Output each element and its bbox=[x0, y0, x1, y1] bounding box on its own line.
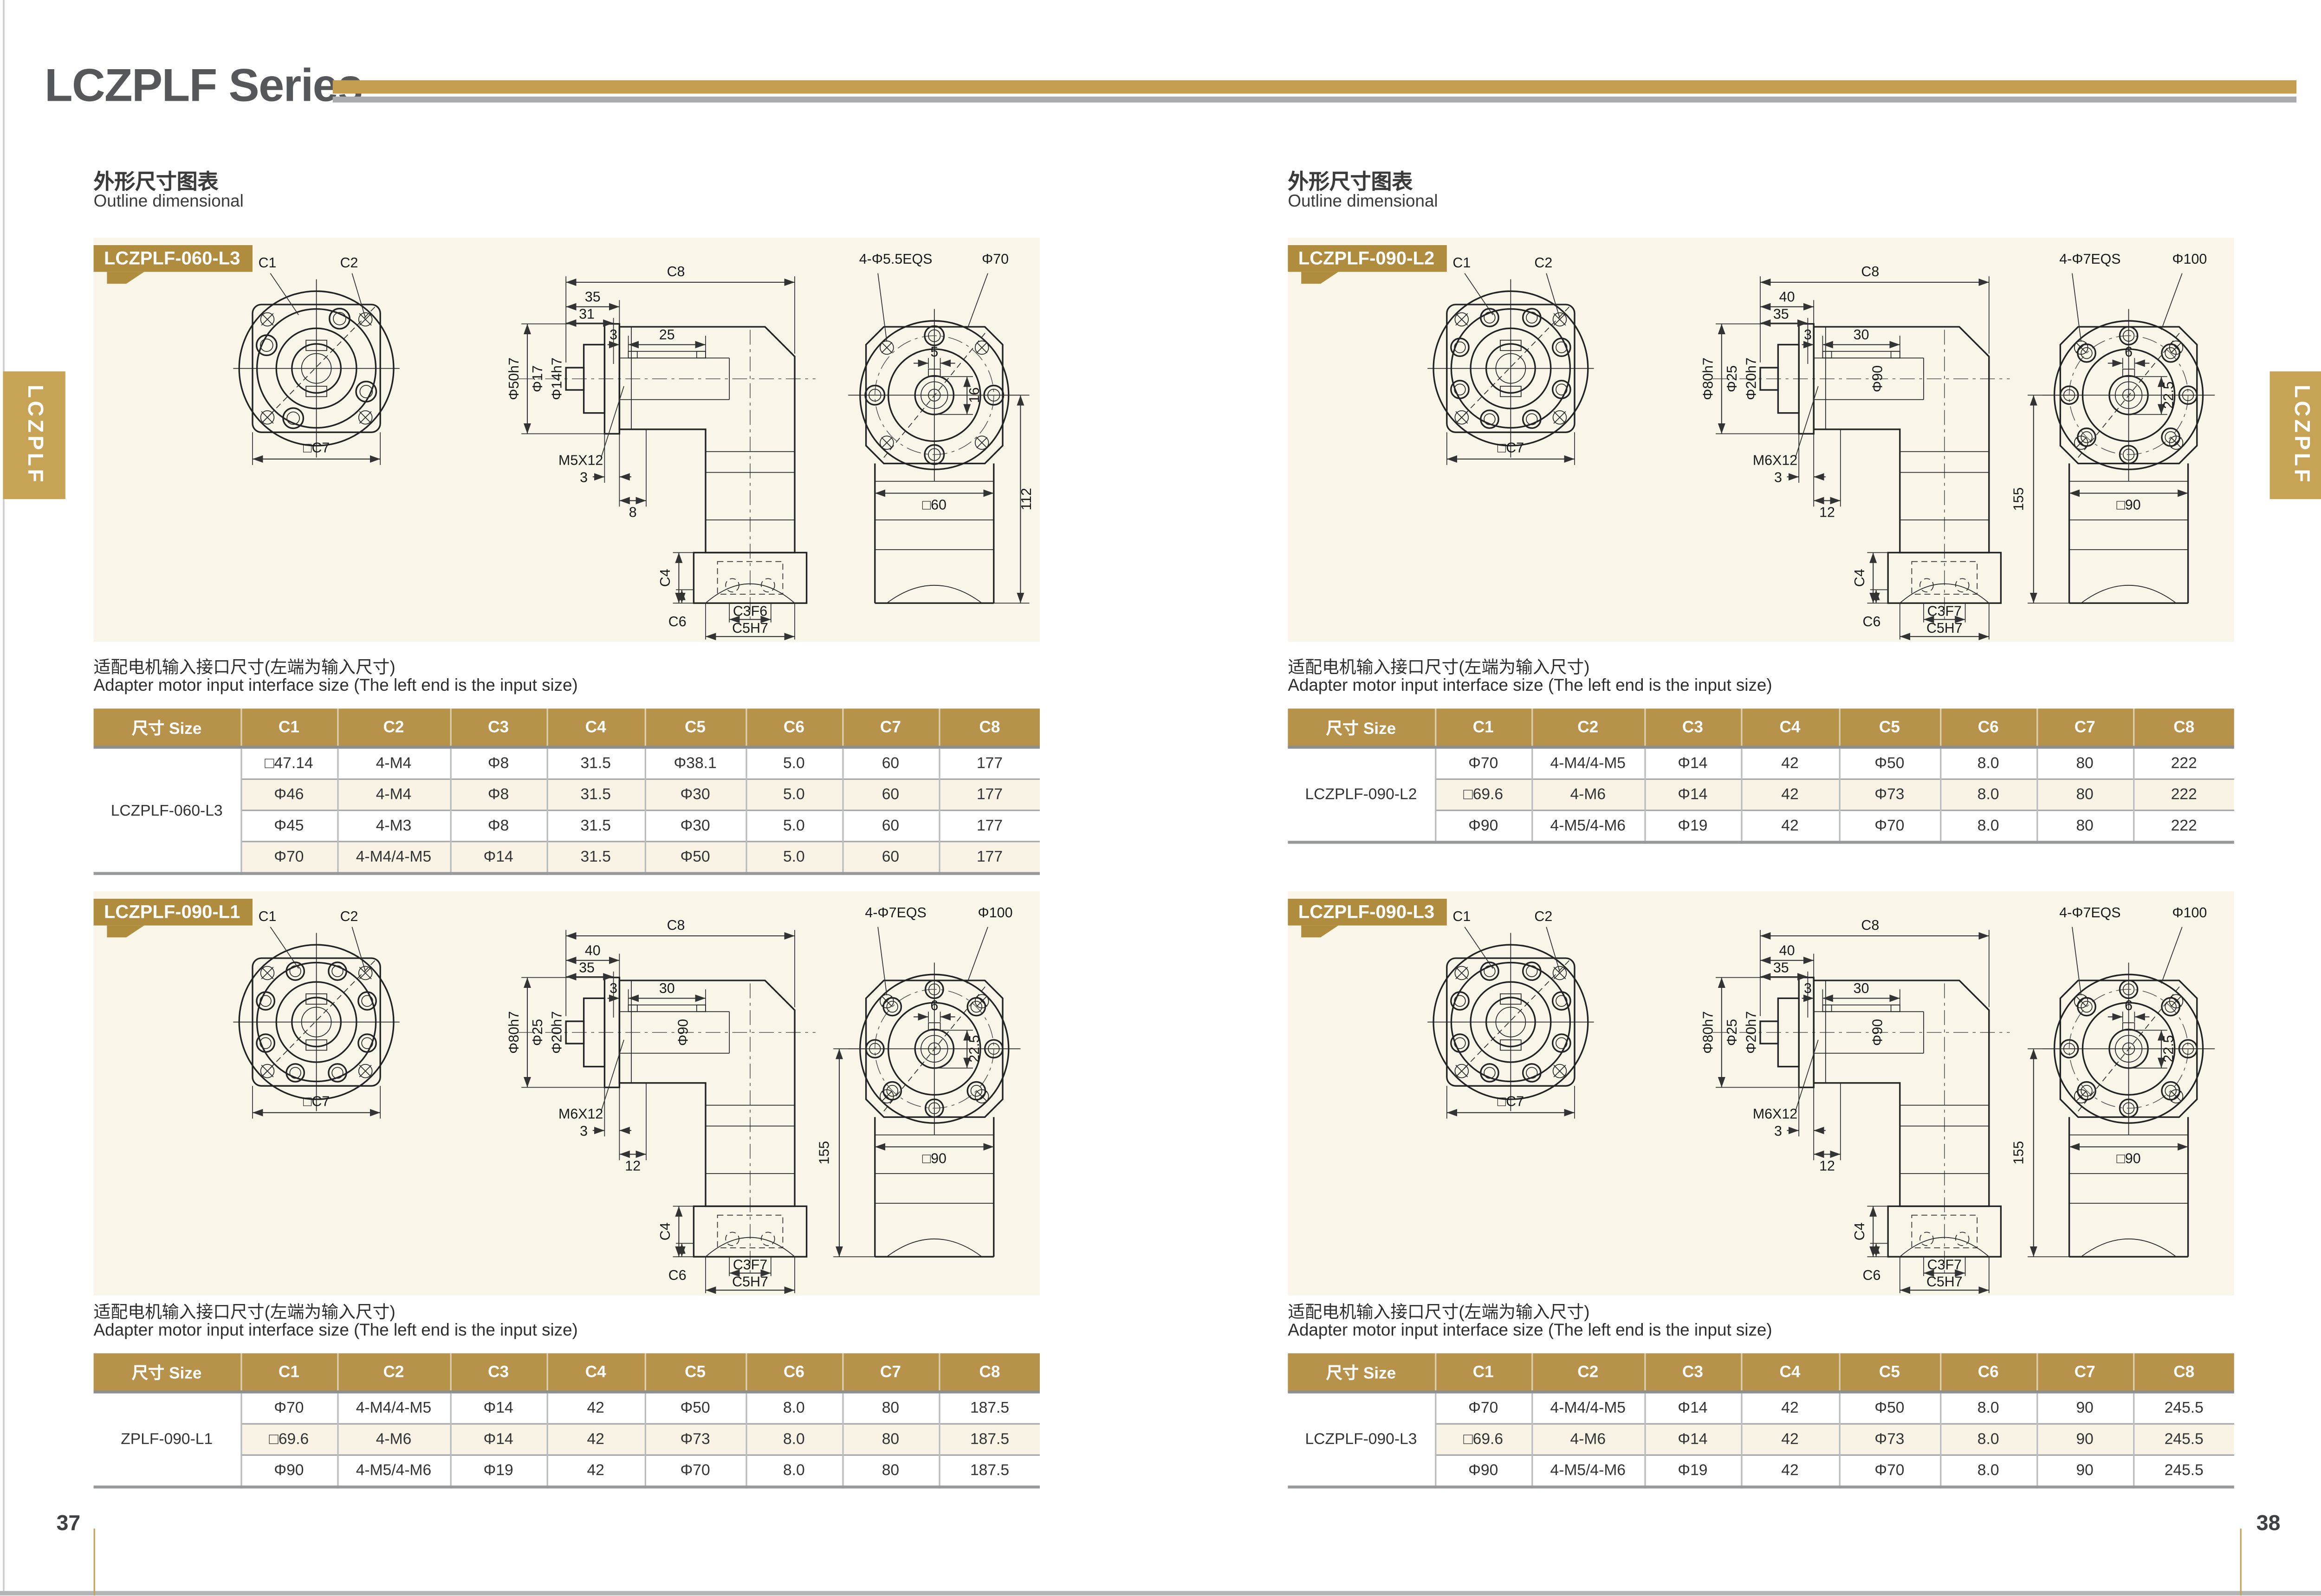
spec-value: 80 bbox=[2036, 779, 2133, 810]
column-header: C8 bbox=[939, 1353, 1040, 1392]
dim-label: C5H7 bbox=[1926, 620, 1963, 636]
spec-value: 8.0 bbox=[1940, 747, 2036, 779]
column-header: C4 bbox=[547, 1353, 645, 1392]
dim-label: Φ100 bbox=[2172, 905, 2207, 921]
spec-value: 5.0 bbox=[746, 747, 842, 779]
spec-value: 60 bbox=[842, 779, 939, 810]
dim-label: C4 bbox=[1852, 1222, 1867, 1240]
dim-label: 112 bbox=[1018, 488, 1034, 510]
section-heading-zh: 外形尺寸图表 bbox=[1288, 166, 1413, 196]
dim-label: 3 bbox=[1774, 1123, 1782, 1139]
table-header-row: 尺寸 SizeC1C2C3C4C5C6C7C8 bbox=[1288, 708, 2234, 747]
spec-value: 80 bbox=[842, 1455, 939, 1487]
column-header: C4 bbox=[547, 708, 645, 747]
column-header: C5 bbox=[645, 1353, 746, 1392]
spec-value: Φ19 bbox=[450, 1455, 547, 1487]
spec-value: 187.5 bbox=[939, 1455, 1040, 1487]
dimension-drawing: C1 C2 □C7 C8 40 35 3 30 Φ80h7 Φ25 Φ20h7 … bbox=[1288, 891, 2234, 1295]
dim-label: 22.5 bbox=[2161, 1035, 2177, 1063]
spec-value: 80 bbox=[842, 1392, 939, 1424]
note-en: Adapter motor input interface size (The … bbox=[94, 1322, 578, 1340]
spec-value: 187.5 bbox=[939, 1424, 1040, 1455]
column-header: C8 bbox=[2133, 1353, 2234, 1392]
spec-value: Φ45 bbox=[240, 811, 337, 842]
spec-value: 245.5 bbox=[2133, 1392, 2234, 1424]
column-header: C7 bbox=[2036, 1353, 2133, 1392]
spec-value: Φ14 bbox=[450, 1424, 547, 1455]
left-column: 外形尺寸图表 Outline dimensional C1 C2 □C7 C8 … bbox=[94, 0, 1040, 1596]
dim-label: 3 bbox=[1774, 469, 1782, 485]
dim-label: 35 bbox=[579, 960, 595, 975]
spec-value: Φ8 bbox=[450, 747, 547, 779]
dim-label: 6 bbox=[2125, 998, 2133, 1013]
dim-label: C2 bbox=[1534, 255, 1552, 271]
dim-label: Φ25 bbox=[1724, 1019, 1740, 1046]
spec-value: Φ30 bbox=[645, 779, 746, 810]
spec-value: 60 bbox=[842, 842, 939, 874]
column-header: C4 bbox=[1741, 1353, 1839, 1392]
dim-label: 12 bbox=[1819, 1158, 1835, 1174]
column-header: C7 bbox=[842, 708, 939, 747]
dim-label: C1 bbox=[1452, 908, 1471, 924]
dim-label: 12 bbox=[625, 1158, 641, 1174]
dim-label: C2 bbox=[340, 255, 358, 271]
dim-label: C3F7 bbox=[1927, 603, 1962, 619]
dim-label: M6X12 bbox=[1753, 453, 1797, 468]
column-header: 尺寸 Size bbox=[1288, 1353, 1435, 1392]
dim-label: 3 bbox=[580, 469, 588, 485]
page-number-left: 37 bbox=[57, 1512, 81, 1536]
dim-label: Φ90 bbox=[1869, 1019, 1885, 1046]
dim-label: Φ25 bbox=[1724, 365, 1740, 392]
spec-value: 31.5 bbox=[547, 842, 645, 874]
side-tab-label: LCZPLF bbox=[2289, 385, 2313, 485]
dimension-drawing: C1 C2 □C7 C8 35 31 3 25 Φ50h7 Φ17 Φ14h7 … bbox=[94, 238, 1040, 642]
page-border-left bbox=[3, 0, 4, 1596]
column-header: C6 bbox=[1940, 1353, 2036, 1392]
column-header: 尺寸 Size bbox=[1288, 708, 1435, 747]
right-column: 外形尺寸图表 Outline dimensional C1 C2 □C7 C8 … bbox=[1288, 0, 2234, 1596]
spec-value: 60 bbox=[842, 811, 939, 842]
column-header: C4 bbox=[1741, 708, 1839, 747]
outline-drawing-panel: C1 C2 □C7 C8 40 35 3 30 Φ80h7 Φ25 Φ20h7 … bbox=[1288, 238, 2234, 642]
dim-label: C2 bbox=[1534, 908, 1552, 924]
dim-label: 3 bbox=[1804, 980, 1812, 996]
dim-label: 4-Φ5.5EQS bbox=[859, 251, 933, 267]
spec-value: Φ50 bbox=[1839, 747, 1940, 779]
spec-value: 42 bbox=[547, 1424, 645, 1455]
outline-drawing-panel: C1 C2 □C7 C8 40 35 3 30 Φ80h7 Φ25 Φ20h7 … bbox=[94, 891, 1040, 1295]
spec-value: Φ70 bbox=[240, 1392, 337, 1424]
dim-label: C3F6 bbox=[733, 603, 767, 619]
dim-label: □C7 bbox=[303, 440, 330, 455]
dim-label: □90 bbox=[2117, 1151, 2141, 1167]
spec-table: 尺寸 SizeC1C2C3C4C5C6C7C8 LCZPLF-060-L3 □4… bbox=[94, 708, 1040, 875]
spec-value: 42 bbox=[1741, 747, 1839, 779]
spec-value: 8.0 bbox=[1940, 1455, 2036, 1487]
dim-label: Φ90 bbox=[1869, 365, 1885, 392]
row-label: LCZPLF-090-L2 bbox=[1288, 747, 1435, 843]
dim-label: 12 bbox=[1819, 505, 1835, 520]
spec-value: Φ50 bbox=[645, 1392, 746, 1424]
dim-label: 30 bbox=[1854, 327, 1869, 343]
dim-label: Φ100 bbox=[2172, 251, 2207, 267]
spec-value: Φ73 bbox=[1839, 1424, 1940, 1455]
spec-value: 8.0 bbox=[746, 1424, 842, 1455]
spec-value: 80 bbox=[2036, 747, 2133, 779]
dim-label: C1 bbox=[1452, 255, 1471, 271]
spec-value: □69.6 bbox=[240, 1424, 337, 1455]
column-header: C7 bbox=[842, 1353, 939, 1392]
dim-label: 31 bbox=[579, 306, 595, 322]
dim-label: C6 bbox=[668, 614, 687, 629]
note-zh: 适配电机输入接口尺寸(左端为输入尺寸) bbox=[94, 1300, 395, 1324]
dim-label: 155 bbox=[2010, 1141, 2026, 1165]
spec-value: 4-M6 bbox=[337, 1424, 450, 1455]
note-en: Adapter motor input interface size (The … bbox=[1288, 677, 1772, 695]
spec-value: 42 bbox=[1741, 811, 1839, 843]
dim-label: Φ14h7 bbox=[549, 357, 565, 400]
column-header: C5 bbox=[645, 708, 746, 747]
table-header-row: 尺寸 SizeC1C2C3C4C5C6C7C8 bbox=[94, 1353, 1040, 1392]
spec-value: Φ90 bbox=[1435, 811, 1531, 843]
dim-label: 40 bbox=[585, 943, 601, 959]
note-en: Adapter motor input interface size (The … bbox=[94, 677, 578, 695]
dim-label: C5H7 bbox=[732, 620, 768, 636]
spec-value: 5.0 bbox=[746, 779, 842, 810]
spec-table: 尺寸 SizeC1C2C3C4C5C6C7C8 ZPLF-090-L1 Φ704… bbox=[94, 1353, 1040, 1488]
note-zh: 适配电机输入接口尺寸(左端为输入尺寸) bbox=[1288, 1300, 1589, 1324]
dim-label: 16 bbox=[966, 387, 982, 403]
spec-value: Φ38.1 bbox=[645, 747, 746, 779]
spec-value: 4-M4/4-M5 bbox=[337, 1392, 450, 1424]
dim-label: C5H7 bbox=[1926, 1274, 1963, 1290]
dim-label: C8 bbox=[1861, 264, 1879, 279]
column-header: C8 bbox=[939, 708, 1040, 747]
column-header: C2 bbox=[1531, 708, 1644, 747]
section-heading-en: Outline dimensional bbox=[1288, 192, 1438, 210]
spec-value: Φ70 bbox=[1435, 1392, 1531, 1424]
dim-label: 4-Φ7EQS bbox=[865, 905, 926, 921]
table-header-row: 尺寸 SizeC1C2C3C4C5C6C7C8 bbox=[1288, 1353, 2234, 1392]
dim-label: C5H7 bbox=[732, 1274, 768, 1290]
dim-label: Φ70 bbox=[982, 251, 1009, 267]
footer-gold-rule-right bbox=[2240, 1529, 2242, 1596]
column-header: C6 bbox=[1940, 708, 2036, 747]
table-row: ZPLF-090-L1 Φ704-M4/4-M5Φ1442Φ508.080187… bbox=[94, 1392, 1040, 1424]
dimension-drawing: C1 C2 □C7 C8 40 35 3 30 Φ80h7 Φ25 Φ20h7 … bbox=[1288, 238, 2234, 642]
spec-value: 245.5 bbox=[2133, 1424, 2234, 1455]
spec-value: □69.6 bbox=[1435, 1424, 1531, 1455]
dim-label: 4-Φ7EQS bbox=[2059, 905, 2120, 921]
dim-label: C4 bbox=[1852, 569, 1867, 587]
spec-value: Φ70 bbox=[1839, 811, 1940, 843]
dim-label: 30 bbox=[659, 980, 675, 996]
spec-value: 8.0 bbox=[746, 1455, 842, 1487]
note-en: Adapter motor input interface size (The … bbox=[1288, 1322, 1772, 1340]
dim-label: C4 bbox=[657, 1222, 673, 1240]
spec-value: 42 bbox=[1741, 1424, 1839, 1455]
spec-value: 177 bbox=[939, 747, 1040, 779]
dim-label: C1 bbox=[259, 255, 277, 271]
spec-value: Φ50 bbox=[1839, 1392, 1940, 1424]
model-badge: LCZPLF-090-L2 bbox=[1288, 245, 1446, 272]
spec-value: Φ30 bbox=[645, 811, 746, 842]
dim-label: □C7 bbox=[303, 1093, 330, 1109]
spec-value: Φ73 bbox=[1839, 779, 1940, 810]
spec-value: 42 bbox=[547, 1455, 645, 1487]
dim-label: Φ80h7 bbox=[1700, 1011, 1716, 1054]
dim-label: Φ90 bbox=[675, 1019, 691, 1046]
spec-value: Φ14 bbox=[1644, 1424, 1741, 1455]
spec-value: Φ14 bbox=[1644, 1392, 1741, 1424]
column-header: C6 bbox=[746, 708, 842, 747]
dim-label: Φ20h7 bbox=[1743, 357, 1759, 400]
spec-value: 222 bbox=[2133, 811, 2234, 843]
dim-label: 40 bbox=[1779, 289, 1795, 305]
dim-label: 3 bbox=[1804, 327, 1812, 343]
dim-label: 35 bbox=[1773, 960, 1789, 975]
spec-value: Φ70 bbox=[1839, 1455, 1940, 1487]
dim-label: □C7 bbox=[1498, 1093, 1524, 1109]
spec-value: 177 bbox=[939, 842, 1040, 874]
spec-value: 8.0 bbox=[1940, 1392, 2036, 1424]
dim-label: □90 bbox=[2117, 497, 2141, 513]
dim-label: 22.5 bbox=[966, 1035, 982, 1063]
spec-value: 80 bbox=[2036, 811, 2133, 843]
column-header: C6 bbox=[746, 1353, 842, 1392]
row-label: ZPLF-090-L1 bbox=[94, 1392, 241, 1487]
dim-label: Φ50h7 bbox=[506, 357, 522, 400]
spec-value: 80 bbox=[842, 1424, 939, 1455]
dim-label: C8 bbox=[667, 264, 685, 279]
model-badge: LCZPLF-090-L1 bbox=[94, 899, 252, 926]
spec-value: 5.0 bbox=[746, 842, 842, 874]
dim-label: 40 bbox=[1779, 943, 1795, 959]
row-label: LCZPLF-090-L3 bbox=[1288, 1392, 1435, 1487]
spec-value: 245.5 bbox=[2133, 1455, 2234, 1487]
side-tab-right: LCZPLF bbox=[2270, 371, 2321, 499]
spec-value: 4-M4/4-M5 bbox=[1531, 1392, 1644, 1424]
dim-label: Φ20h7 bbox=[1743, 1011, 1759, 1054]
spec-value: 177 bbox=[939, 779, 1040, 810]
spec-value: 8.0 bbox=[1940, 811, 2036, 843]
dim-label: 155 bbox=[817, 1141, 832, 1165]
column-header: C3 bbox=[1644, 708, 1741, 747]
spec-value: Φ8 bbox=[450, 811, 547, 842]
spec-value: Φ70 bbox=[645, 1455, 746, 1487]
column-header: C2 bbox=[337, 708, 450, 747]
column-header: C3 bbox=[1644, 1353, 1741, 1392]
column-header: C7 bbox=[2036, 708, 2133, 747]
section-heading-zh: 外形尺寸图表 bbox=[94, 166, 219, 196]
dim-label: 30 bbox=[1854, 980, 1869, 996]
dim-label: 35 bbox=[585, 289, 601, 305]
column-header: C5 bbox=[1839, 708, 1940, 747]
dim-label: 35 bbox=[1773, 306, 1789, 322]
dim-label: C6 bbox=[668, 1267, 687, 1283]
spec-table: 尺寸 SizeC1C2C3C4C5C6C7C8 LCZPLF-090-L3 Φ7… bbox=[1288, 1353, 2234, 1488]
spec-value: 4-M6 bbox=[1531, 779, 1644, 810]
column-header: C3 bbox=[450, 708, 547, 747]
table-row: LCZPLF-090-L3 Φ704-M4/4-M5Φ1442Φ508.0902… bbox=[1288, 1392, 2234, 1424]
spec-value: 31.5 bbox=[547, 779, 645, 810]
dim-label: Φ25 bbox=[530, 1019, 545, 1046]
spec-value: 8.0 bbox=[1940, 779, 2036, 810]
dim-label: 3 bbox=[609, 980, 617, 996]
spec-value: 4-M4/4-M5 bbox=[1531, 747, 1644, 779]
spec-value: Φ14 bbox=[1644, 779, 1741, 810]
spec-value: Φ14 bbox=[450, 842, 547, 874]
column-header: 尺寸 Size bbox=[94, 708, 241, 747]
spec-value: 4-M6 bbox=[1531, 1424, 1644, 1455]
column-header: 尺寸 Size bbox=[94, 1353, 241, 1392]
dim-label: C8 bbox=[1861, 917, 1879, 933]
dim-label: C8 bbox=[667, 917, 685, 933]
spec-value: 177 bbox=[939, 811, 1040, 842]
column-header: C5 bbox=[1839, 1353, 1940, 1392]
table-row: LCZPLF-060-L3 □47.144-M4Φ831.5Φ38.15.060… bbox=[94, 747, 1040, 779]
spec-value: 4-M4 bbox=[337, 779, 450, 810]
spec-value: 4-M4 bbox=[337, 747, 450, 779]
dim-label: 25 bbox=[659, 327, 675, 343]
outline-drawing-panel: C1 C2 □C7 C8 40 35 3 30 Φ80h7 Φ25 Φ20h7 … bbox=[1288, 891, 2234, 1295]
spec-value: 5.0 bbox=[746, 811, 842, 842]
spec-value: 90 bbox=[2036, 1455, 2133, 1487]
spec-value: Φ8 bbox=[450, 779, 547, 810]
dim-label: 8 bbox=[629, 505, 637, 520]
catalog-page: LCZPLF Series LCZPLF LCZPLF 外形尺寸图表 Outli… bbox=[0, 0, 2321, 1596]
dim-label: □60 bbox=[922, 497, 947, 513]
side-tab-left: LCZPLF bbox=[3, 371, 65, 499]
spec-value: 4-M4/4-M5 bbox=[337, 842, 450, 874]
table-row: LCZPLF-090-L2 Φ704-M4/4-M5Φ1442Φ508.0802… bbox=[1288, 747, 2234, 779]
dim-label: 5 bbox=[930, 344, 938, 360]
spec-value: Φ46 bbox=[240, 779, 337, 810]
column-header: C1 bbox=[1435, 1353, 1531, 1392]
column-header: C1 bbox=[240, 708, 337, 747]
dim-label: M5X12 bbox=[558, 453, 603, 468]
side-tab-label: LCZPLF bbox=[22, 385, 46, 485]
spec-value: 90 bbox=[2036, 1424, 2133, 1455]
spec-value: 42 bbox=[547, 1392, 645, 1424]
model-badge: LCZPLF-060-L3 bbox=[94, 245, 252, 272]
spec-value: 4-M5/4-M6 bbox=[1531, 811, 1644, 843]
dim-label: Φ80h7 bbox=[506, 1011, 522, 1054]
spec-value: 60 bbox=[842, 747, 939, 779]
spec-value: 4-M3 bbox=[337, 811, 450, 842]
dim-label: Φ100 bbox=[978, 905, 1013, 921]
dim-label: □C7 bbox=[1498, 440, 1524, 455]
spec-value: Φ90 bbox=[240, 1455, 337, 1487]
spec-value: 4-M5/4-M6 bbox=[1531, 1455, 1644, 1487]
spec-value: Φ14 bbox=[450, 1392, 547, 1424]
dim-label: C2 bbox=[340, 908, 358, 924]
dim-label: 3 bbox=[580, 1123, 588, 1139]
note-zh: 适配电机输入接口尺寸(左端为输入尺寸) bbox=[94, 655, 395, 679]
spec-value: Φ19 bbox=[1644, 811, 1741, 843]
note-zh: 适配电机输入接口尺寸(左端为输入尺寸) bbox=[1288, 655, 1589, 679]
spec-value: 90 bbox=[2036, 1392, 2133, 1424]
outline-drawing-panel: C1 C2 □C7 C8 35 31 3 25 Φ50h7 Φ17 Φ14h7 … bbox=[94, 238, 1040, 642]
dim-label: 4-Φ7EQS bbox=[2059, 251, 2120, 267]
footer-gold-rule-left bbox=[94, 1529, 96, 1596]
spec-value: Φ19 bbox=[1644, 1455, 1741, 1487]
column-header: C3 bbox=[450, 1353, 547, 1392]
table-header-row: 尺寸 SizeC1C2C3C4C5C6C7C8 bbox=[94, 708, 1040, 747]
column-header: C8 bbox=[2133, 708, 2234, 747]
spec-value: 42 bbox=[1741, 1392, 1839, 1424]
spec-value: 187.5 bbox=[939, 1392, 1040, 1424]
spec-value: 222 bbox=[2133, 779, 2234, 810]
dimension-drawing: C1 C2 □C7 C8 40 35 3 30 Φ80h7 Φ25 Φ20h7 … bbox=[94, 891, 1040, 1295]
spec-value: 42 bbox=[1741, 1455, 1839, 1487]
spec-table: 尺寸 SizeC1C2C3C4C5C6C7C8 LCZPLF-090-L2 Φ7… bbox=[1288, 708, 2234, 843]
dim-label: C4 bbox=[657, 569, 673, 587]
dim-label: 3 bbox=[609, 327, 617, 343]
spec-value: 42 bbox=[1741, 779, 1839, 810]
spec-value: Φ73 bbox=[645, 1424, 746, 1455]
dim-label: C3F7 bbox=[1927, 1257, 1962, 1272]
column-header: C1 bbox=[1435, 708, 1531, 747]
dim-label: 6 bbox=[2125, 344, 2133, 360]
spec-value: 222 bbox=[2133, 747, 2234, 779]
dim-label: C6 bbox=[1863, 1267, 1881, 1283]
dim-label: Φ80h7 bbox=[1700, 357, 1716, 400]
spec-value: 4-M5/4-M6 bbox=[337, 1455, 450, 1487]
column-header: C2 bbox=[337, 1353, 450, 1392]
dim-label: C3F7 bbox=[733, 1257, 767, 1272]
dim-label: C1 bbox=[259, 908, 277, 924]
spec-value: Φ14 bbox=[1644, 747, 1741, 779]
spec-value: 31.5 bbox=[547, 811, 645, 842]
row-label: LCZPLF-060-L3 bbox=[94, 747, 241, 874]
page-number-right: 38 bbox=[2256, 1512, 2281, 1536]
spec-value: Φ70 bbox=[240, 842, 337, 874]
spec-value: 8.0 bbox=[746, 1392, 842, 1424]
dim-label: 6 bbox=[930, 998, 938, 1013]
dim-label: Φ20h7 bbox=[549, 1011, 565, 1054]
spec-value: Φ50 bbox=[645, 842, 746, 874]
dim-label: 155 bbox=[2010, 487, 2026, 511]
section-heading-en: Outline dimensional bbox=[94, 192, 244, 210]
spec-value: □47.14 bbox=[240, 747, 337, 779]
dim-label: M6X12 bbox=[558, 1106, 603, 1122]
model-badge: LCZPLF-090-L3 bbox=[1288, 899, 1446, 926]
spec-value: Φ70 bbox=[1435, 747, 1531, 779]
column-header: C1 bbox=[240, 1353, 337, 1392]
dim-label: □90 bbox=[922, 1151, 947, 1167]
spec-value: □69.6 bbox=[1435, 779, 1531, 810]
spec-value: Φ90 bbox=[1435, 1455, 1531, 1487]
spec-value: 8.0 bbox=[1940, 1424, 2036, 1455]
dim-label: Φ17 bbox=[530, 365, 545, 392]
column-header: C2 bbox=[1531, 1353, 1644, 1392]
dim-label: M6X12 bbox=[1753, 1106, 1797, 1122]
dim-label: C6 bbox=[1863, 614, 1881, 629]
spec-value: 31.5 bbox=[547, 747, 645, 779]
dim-label: 22.5 bbox=[2161, 382, 2177, 409]
